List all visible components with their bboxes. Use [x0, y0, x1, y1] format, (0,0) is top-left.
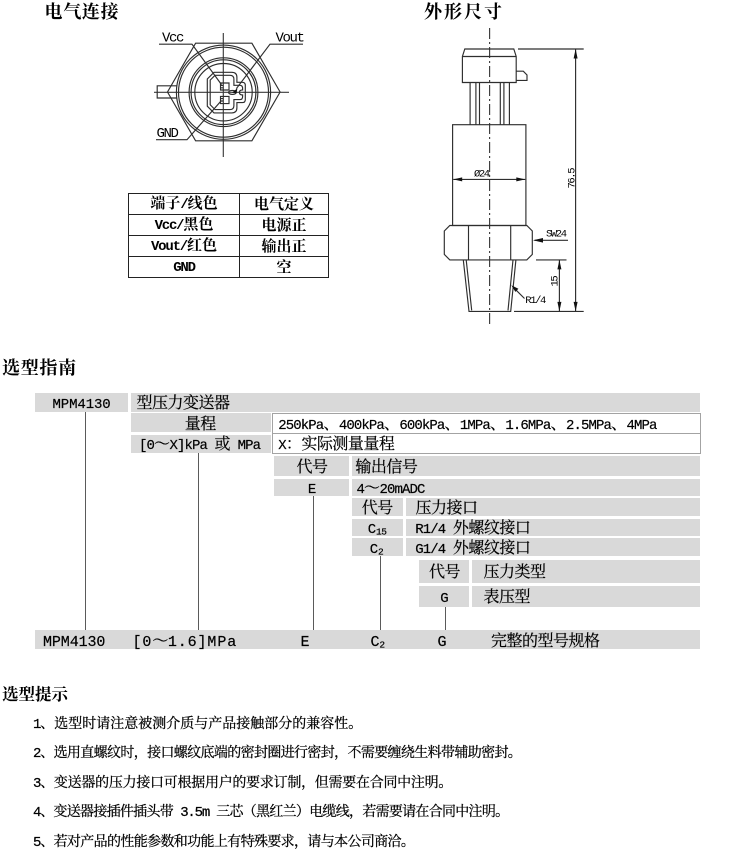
svg-text:76.5: 76.5: [566, 168, 578, 189]
svg-text:R1/4: R1/4: [525, 295, 546, 307]
svg-text:15: 15: [550, 276, 562, 287]
svg-text:SW24: SW24: [546, 229, 567, 241]
svg-text:Ø24: Ø24: [474, 168, 490, 180]
